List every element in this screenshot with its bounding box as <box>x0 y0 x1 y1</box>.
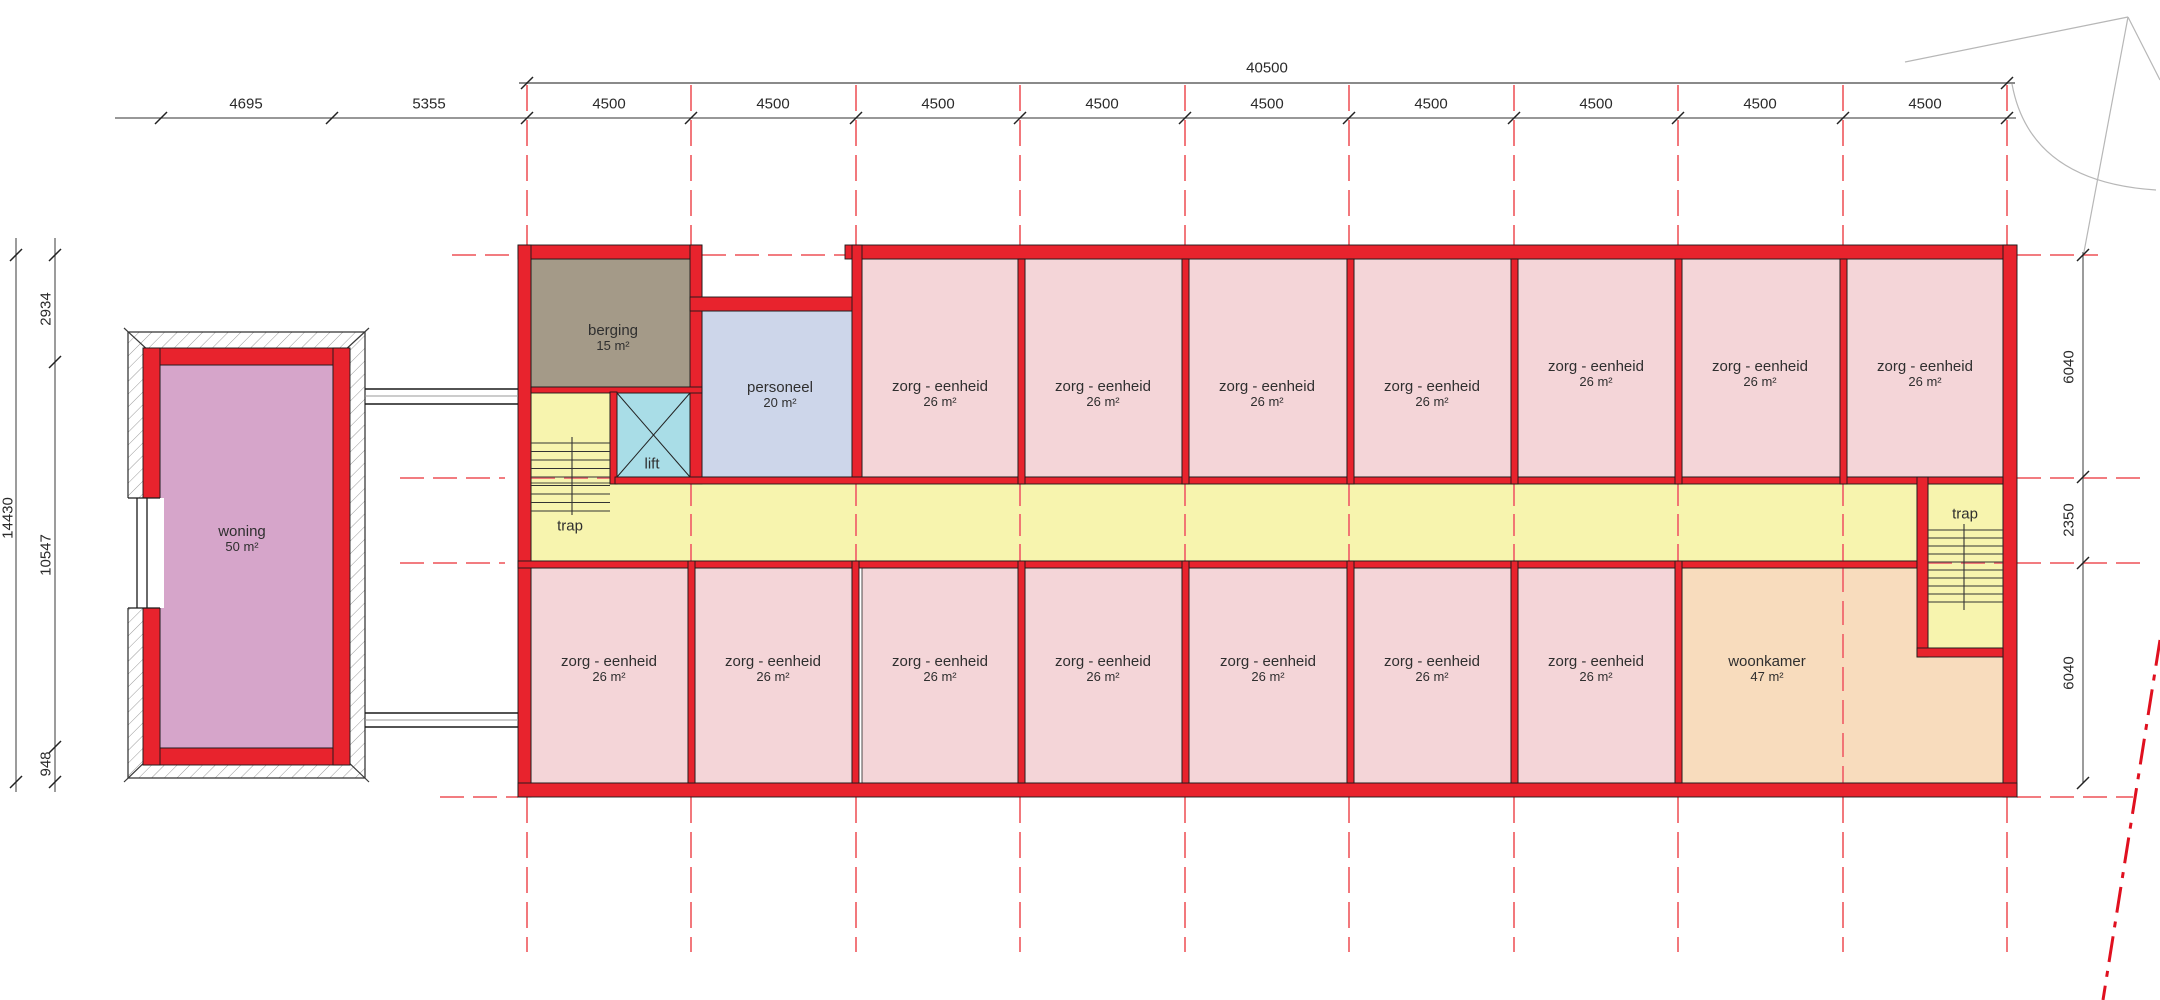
dim-4695: 4695 <box>229 96 262 113</box>
room-fill-zorg-bottom-5 <box>1189 568 1347 783</box>
dim-6040-top: 6040 <box>2061 350 2078 383</box>
wall <box>1182 259 1189 484</box>
wall <box>143 348 350 365</box>
wall <box>1917 477 1928 657</box>
room-fills <box>160 259 2003 783</box>
dim-4500-9: 4500 <box>1908 96 1941 113</box>
room-fill-zorg-bottom-6 <box>1354 568 1511 783</box>
dim-4500-3: 4500 <box>921 96 954 113</box>
room-fill-zorg-bottom-1 <box>531 568 688 783</box>
wall <box>518 245 702 259</box>
wall <box>852 561 859 783</box>
room-fill-corridor <box>531 483 1917 561</box>
room-fill-zorg-bottom-2 <box>695 568 852 783</box>
wall <box>852 245 862 477</box>
wall <box>1511 259 1518 484</box>
dim-10547: 10547 <box>38 534 55 576</box>
wall <box>143 748 350 765</box>
dim-4500-8: 4500 <box>1743 96 1776 113</box>
dim-4500-4: 4500 <box>1085 96 1118 113</box>
room-fill-berging <box>531 259 702 387</box>
room-fill-zorg-bottom-3 <box>862 568 1018 783</box>
dim-948: 948 <box>38 751 55 776</box>
dim-total-top: 40500 <box>1246 60 1288 77</box>
wall <box>1018 561 1025 783</box>
site-boundary-diagonal <box>2103 640 2160 1000</box>
woning-west-opening <box>126 498 164 608</box>
dim-4500-6: 4500 <box>1414 96 1447 113</box>
wall <box>143 607 160 765</box>
wall <box>845 245 2017 259</box>
wall <box>1675 259 1682 484</box>
construction-line <box>2084 17 2128 252</box>
construction-line <box>2128 17 2160 80</box>
wall <box>1917 648 2003 657</box>
wall <box>333 348 350 765</box>
room-fill-zorg-top-3 <box>1189 259 1347 477</box>
dim-14430: 14430 <box>0 497 17 539</box>
wall <box>615 477 2003 484</box>
wall <box>1511 561 1518 783</box>
dim-4500-5: 4500 <box>1250 96 1283 113</box>
dim-6040-bottom: 6040 <box>2061 656 2078 689</box>
room-fill-trap-right <box>1928 484 2003 648</box>
wall <box>690 297 862 311</box>
floorplan-drawing <box>0 0 2160 1000</box>
dim-4500-7: 4500 <box>1579 96 1612 113</box>
room-fill-zorg-bottom-4 <box>1025 568 1182 783</box>
wall <box>1675 561 1682 783</box>
wall <box>2003 245 2017 797</box>
room-fill-zorg-top-4 <box>1354 259 1511 477</box>
wall <box>1840 259 1847 484</box>
wall <box>1182 561 1189 783</box>
room-fill-zorg-top-6 <box>1682 259 1840 477</box>
wall <box>518 561 1917 568</box>
wall <box>518 245 531 797</box>
wall <box>610 392 617 484</box>
dim-2934: 2934 <box>38 292 55 325</box>
room-fill-zorg-top-1 <box>862 259 1018 477</box>
wall <box>690 245 702 484</box>
wall <box>518 783 2017 797</box>
wall <box>688 561 695 783</box>
room-fill-zorg-top-2 <box>1025 259 1182 477</box>
wall <box>1347 259 1354 484</box>
room-fill-zorg-top-5 <box>1518 259 1675 477</box>
floorplan-canvas: 40500 4695 5355 4500 4500 4500 4500 4500… <box>0 0 2160 1000</box>
construction-arc <box>2012 84 2156 190</box>
dim-5355: 5355 <box>412 96 445 113</box>
construction-line <box>1905 17 2128 62</box>
dim-2350: 2350 <box>2061 503 2078 536</box>
wall <box>143 348 160 500</box>
room-fill-zorg-top-7 <box>1847 259 2003 477</box>
wall <box>1347 561 1354 783</box>
dim-4500-1: 4500 <box>592 96 625 113</box>
dim-4500-2: 4500 <box>756 96 789 113</box>
room-fill-personeel <box>702 311 852 477</box>
room-fill-woning <box>160 365 333 748</box>
wall <box>1018 259 1025 484</box>
room-fill-zorg-bottom-7 <box>1518 568 1675 783</box>
